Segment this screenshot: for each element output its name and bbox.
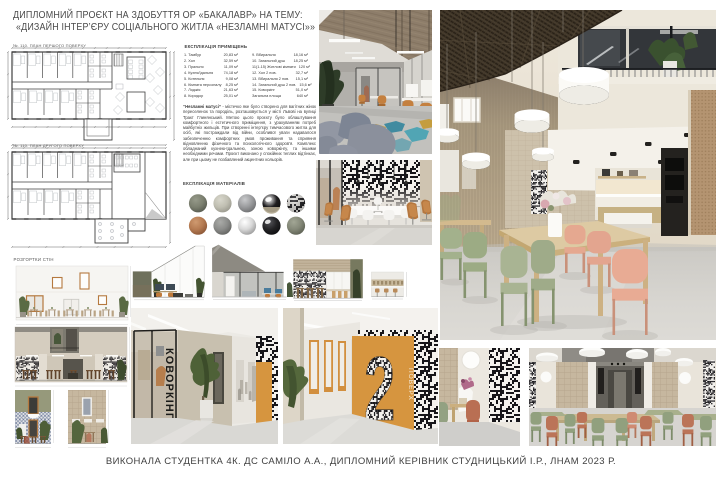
svg-text:ПОВЕРХ: ПОВЕРХ	[407, 368, 414, 401]
svg-text:КОВОРКІНГ: КОВОРКІНГ	[163, 348, 175, 419]
